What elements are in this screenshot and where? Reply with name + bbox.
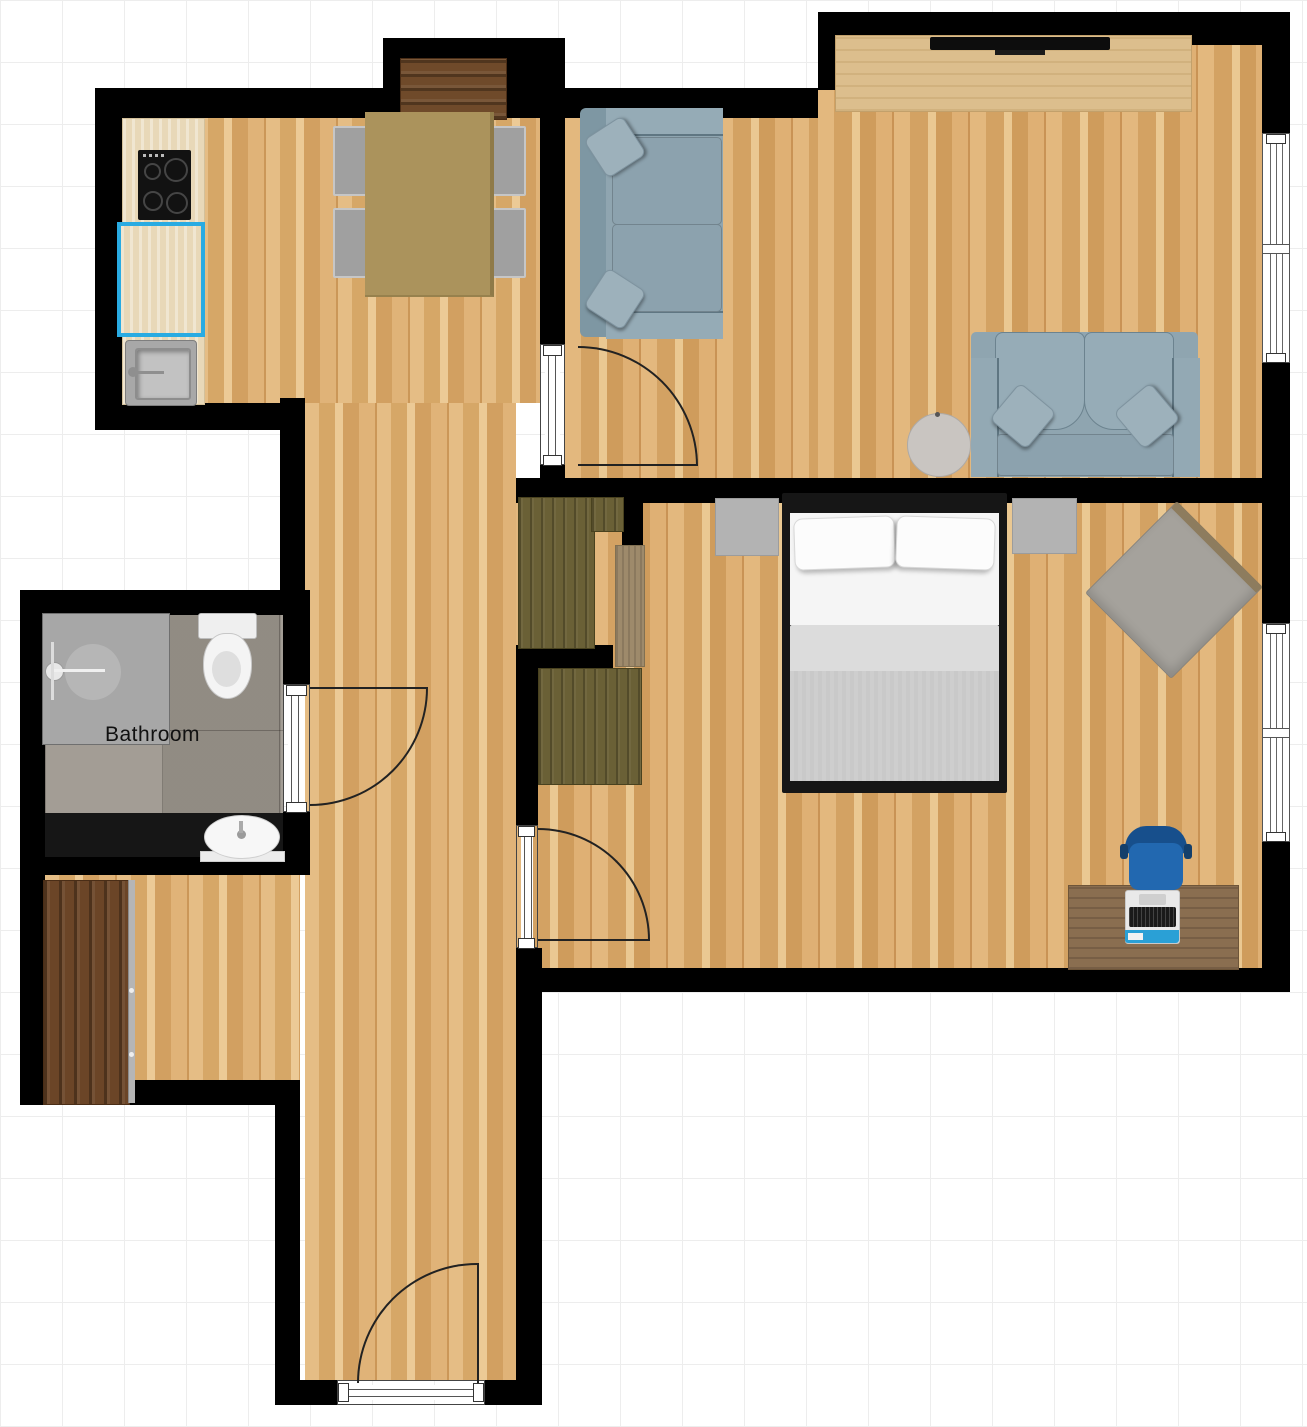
sofa[interactable] (580, 108, 723, 337)
wall (516, 948, 542, 1405)
floor-corridor (305, 403, 516, 1380)
wall (503, 38, 565, 90)
wardrobe-handle-icon (129, 1052, 134, 1057)
office-chair[interactable] (1125, 826, 1187, 890)
shower-pipe-icon (51, 642, 54, 700)
wardrobe[interactable] (538, 668, 642, 785)
laptop-hinge (1139, 894, 1166, 905)
double-bed[interactable] (782, 493, 1007, 793)
bed-blanket-fold (790, 625, 999, 671)
toilet[interactable] (198, 613, 255, 701)
wardrobe[interactable] (518, 497, 595, 649)
cooktop-controls (143, 154, 165, 157)
office-chair-armrest (1184, 844, 1192, 859)
shower-arm-icon (53, 669, 105, 672)
wall (1262, 363, 1290, 478)
dining-chair[interactable] (333, 126, 367, 196)
dining-chair[interactable] (333, 208, 367, 278)
sink-faucet-icon (239, 821, 243, 833)
wardrobe[interactable] (591, 497, 624, 532)
loveseat[interactable] (971, 332, 1198, 477)
tv[interactable] (930, 37, 1110, 50)
wall (20, 590, 310, 615)
cooktop-burner (144, 163, 161, 180)
wall (20, 875, 45, 1105)
nightstand[interactable] (715, 498, 779, 556)
dining-table[interactable] (365, 112, 494, 297)
floor-plan-canvas: { "labels": { "bathroom": "Bathroom" }, … (0, 0, 1307, 1427)
wall (95, 403, 305, 430)
round-table-knob (935, 412, 940, 417)
window-living-room[interactable] (1262, 133, 1290, 363)
wall (275, 1105, 300, 1405)
laptop-sticker (1125, 930, 1179, 943)
laptop[interactable] (1125, 890, 1180, 944)
bed-pillow (793, 515, 896, 570)
laptop-sticker-label (1128, 933, 1143, 940)
cooktop[interactable] (138, 150, 191, 220)
cooktop-burner (164, 158, 188, 182)
dresser[interactable] (615, 545, 645, 667)
tv-stand (995, 50, 1045, 55)
bathroom-sink[interactable] (204, 815, 280, 859)
office-chair-armrest (1120, 844, 1128, 859)
door-leaf (538, 939, 650, 941)
nightstand[interactable] (1012, 498, 1077, 554)
shower-drain (65, 644, 121, 700)
door-bathroom[interactable] (283, 684, 310, 812)
selected-counter[interactable] (117, 222, 205, 337)
wall (1262, 45, 1290, 133)
sink-basin (135, 348, 191, 400)
door-leaf (578, 464, 698, 466)
bed-pillow (895, 515, 996, 570)
sink-faucet-icon (132, 371, 164, 374)
wall (516, 968, 1290, 992)
laptop-keyboard (1129, 907, 1176, 927)
wall (275, 1380, 337, 1405)
wall (283, 812, 310, 875)
window-bedroom[interactable] (1262, 623, 1290, 842)
dining-chair[interactable] (492, 208, 526, 278)
front-door[interactable] (337, 1380, 485, 1405)
wall (1262, 503, 1290, 623)
round-side-table[interactable] (907, 413, 971, 477)
office-chair-seat (1129, 843, 1183, 890)
door-leaf (310, 687, 428, 689)
wardrobe-handle-icon (129, 988, 134, 993)
door-living-room[interactable] (540, 344, 565, 465)
wall (540, 88, 565, 344)
toilet-seat (212, 651, 241, 687)
wall (283, 590, 310, 684)
wall (280, 398, 305, 615)
cooktop-burner (166, 192, 188, 214)
bed-blanket (790, 671, 999, 781)
cooktop-burner (143, 191, 163, 211)
room-label-bathroom: Bathroom (105, 723, 200, 747)
entry-wardrobe[interactable] (43, 880, 130, 1105)
door-leaf (477, 1263, 479, 1383)
dining-chair[interactable] (492, 126, 526, 196)
door-bedroom[interactable] (516, 825, 538, 948)
wall (516, 645, 538, 825)
kitchen-sink[interactable] (125, 340, 197, 406)
wall (95, 88, 400, 118)
niche-sideboard[interactable] (400, 58, 507, 120)
